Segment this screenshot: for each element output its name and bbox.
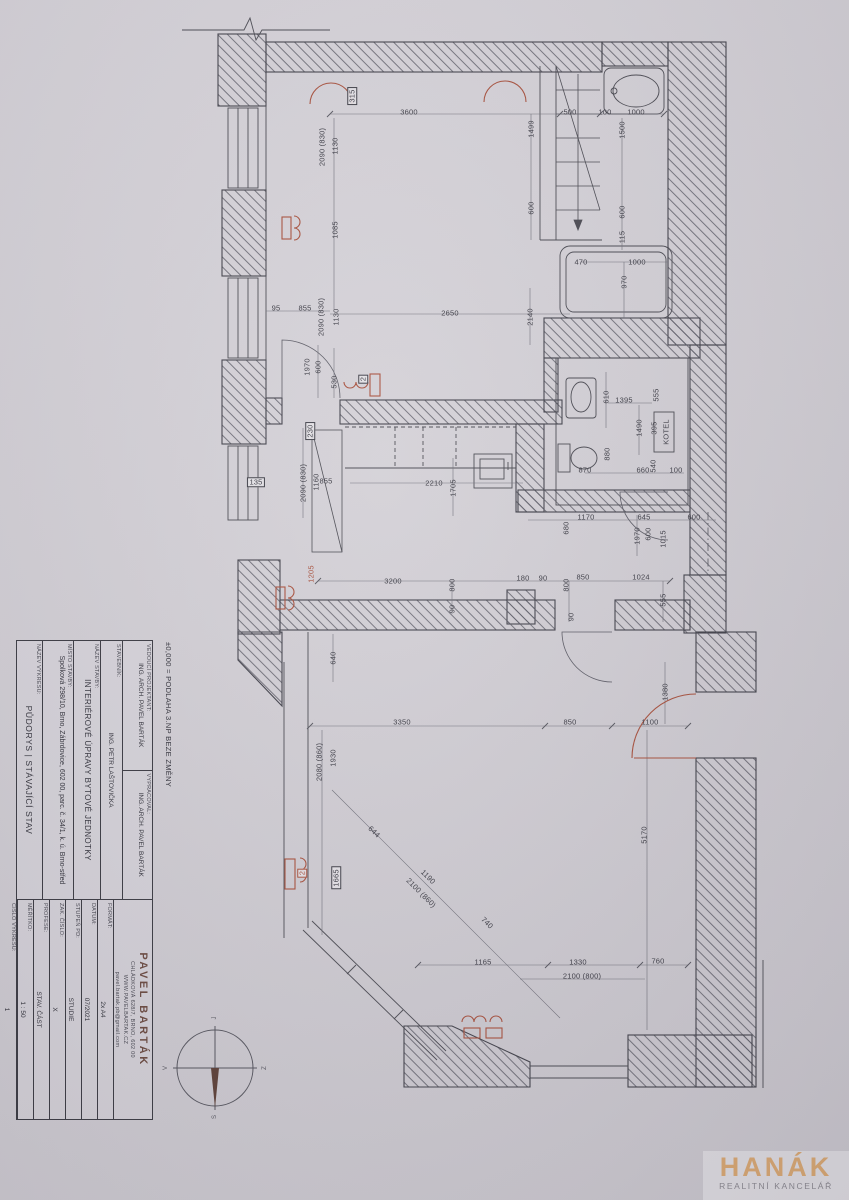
dimension-label: 1015 bbox=[659, 530, 667, 548]
dimension-label: 800 bbox=[448, 578, 456, 591]
meta-value: 07/2021 bbox=[84, 903, 91, 1116]
title-block-main-column: VEDOUCÍ PROJEKTANT: ING. ARCH. PAVEL BAR… bbox=[17, 641, 152, 900]
field-label: NÁZEV VÝKRESU: bbox=[35, 644, 41, 896]
meta-zakazka: ZAK. ČÍSLO: X bbox=[50, 900, 66, 1119]
field-label: VEDOUCÍ PROJEKTANT: bbox=[145, 644, 151, 767]
architect-name: PAVEL BARTÁK bbox=[137, 900, 149, 1119]
dimension-label: 855 bbox=[319, 477, 332, 485]
meta-value: 1 bbox=[4, 903, 11, 1116]
dimension-label: 555 bbox=[652, 388, 660, 401]
dimension-label: 645 bbox=[637, 513, 650, 521]
dimension-label: 90 bbox=[567, 613, 575, 622]
dimension-label: 2650 bbox=[441, 309, 459, 317]
field-misto-stavby: MÍSTO STAVBY: Spolková 298/10, Brno, Záb… bbox=[42, 641, 73, 899]
dimension-label: 1190 bbox=[419, 868, 436, 885]
dimension-label: 115 bbox=[618, 231, 626, 244]
dimension-label: 1930 bbox=[329, 749, 337, 767]
meta-value: 2x A4 bbox=[100, 903, 107, 1116]
reference-label: 2 bbox=[297, 868, 307, 877]
meta-value: STAV. ČÁST bbox=[36, 903, 43, 1116]
dimension-label: 555 bbox=[659, 593, 667, 606]
watermark-tagline: REALITNÍ KANCELÁŘ bbox=[703, 1181, 849, 1191]
dimension-label: 1705 bbox=[449, 479, 457, 497]
dimension-label: 1170 bbox=[578, 513, 595, 521]
field-label: NÁZEV STAVBY: bbox=[93, 644, 99, 896]
dimension-label: 3600 bbox=[400, 108, 418, 116]
dimension-label: 2100 (800) bbox=[563, 972, 601, 980]
dimension-label: 880 bbox=[603, 447, 611, 460]
field-value: ING. PETR LAŠTOVIČKA bbox=[107, 644, 114, 896]
meta-label: PROFESE: bbox=[43, 903, 49, 1116]
dimension-label: 500 bbox=[563, 108, 576, 116]
dimension-label: 180 bbox=[516, 574, 529, 582]
dimension-label: 970 bbox=[620, 275, 628, 288]
dimension-label: 855 bbox=[298, 304, 311, 312]
dimension-label: 1205 bbox=[307, 565, 315, 583]
field-stavebnik: STAVEBNÍK: ING. PETR LAŠTOVIČKA bbox=[100, 641, 122, 899]
scanned-floor-plan-photo: 315360011302090 (830)1499500100100015006… bbox=[0, 0, 849, 1200]
meta-cislo-vykresu: ČÍSLO VÝKRESU: 1 bbox=[3, 900, 18, 1119]
dimension-label: 2090 (830) bbox=[317, 298, 325, 336]
dimension-label: 1130 bbox=[332, 309, 340, 326]
dimension-label: 1130 bbox=[331, 138, 339, 155]
dimension-label: 644 bbox=[367, 825, 382, 840]
dimension-label: 600 bbox=[644, 527, 652, 540]
dimension-label: KOTEL bbox=[662, 419, 670, 445]
dimension-label: 2080 (860) bbox=[315, 743, 323, 781]
watermark-brand: HANÁK bbox=[703, 1153, 849, 1181]
dimension-label: 95 bbox=[272, 304, 281, 312]
meta-label: ZAK. ČÍSLO: bbox=[59, 903, 65, 1116]
dimension-label: 850 bbox=[563, 718, 576, 726]
title-block-meta-column: PAVEL BARTÁK CHLÁDKOVÁ 628/7, BRNO, 602 … bbox=[17, 900, 152, 1119]
dimension-label: 1330 bbox=[569, 958, 587, 966]
architect-contact: PAVEL BARTÁK CHLÁDKOVÁ 628/7, BRNO, 602 … bbox=[114, 900, 153, 1119]
meta-label: ČÍSLO VÝKRESU: bbox=[11, 903, 17, 1116]
dimension-label: 1085 bbox=[331, 221, 339, 239]
realty-watermark: HANÁK REALITNÍ KANCELÁŘ bbox=[703, 1151, 849, 1200]
architect-website: WWW.PAVELBARTAK.CZ bbox=[122, 900, 128, 1119]
field-label: MÍSTO STAVBY: bbox=[66, 644, 72, 896]
meta-label: MĚŘÍTKO: bbox=[27, 903, 33, 1116]
dimension-label: 640 bbox=[329, 651, 337, 664]
dimension-label: 600 bbox=[618, 205, 626, 218]
dimension-label: 870 bbox=[578, 466, 591, 474]
dimension-label: 90 bbox=[539, 574, 548, 582]
dimension-label: 90 bbox=[448, 605, 456, 614]
elevation-note: ±0,000 = PODLAHA 3.NP BEZE ZMĚNY bbox=[164, 642, 173, 787]
dimension-label: 600 bbox=[527, 201, 535, 214]
dimension-label: 100 bbox=[669, 466, 682, 474]
meta-label: DATUM: bbox=[91, 903, 97, 1116]
field-value: PŮDORYS | STÁVAJÍCÍ STAV bbox=[24, 644, 34, 896]
meta-meritko: MĚŘÍTKO: 1 : 50 bbox=[18, 900, 34, 1119]
dimension-label: 5170 bbox=[640, 826, 648, 844]
reference-label: 2 bbox=[358, 374, 368, 383]
dimension-label: 1100 bbox=[642, 718, 659, 726]
reference-label: 135 bbox=[247, 477, 265, 487]
dimension-label: 2210 bbox=[425, 479, 443, 487]
field-nazev-stavby: NÁZEV STAVBY: INTERIÉROVÉ ÚPRAVY BYTOVÉ … bbox=[73, 641, 100, 899]
dimension-label: 100 bbox=[598, 108, 611, 116]
title-block-table: VEDOUCÍ PROJEKTANT: ING. ARCH. PAVEL BAR… bbox=[16, 640, 153, 1120]
reference-label: 230 bbox=[305, 422, 315, 440]
dimension-label: 1380 bbox=[661, 683, 669, 701]
dimension-label: 600 bbox=[314, 360, 322, 373]
reference-label: 315 bbox=[347, 87, 357, 105]
dimension-label: 1500 bbox=[618, 121, 626, 139]
field-nazev-vykresu: NÁZEV VÝKRESU: PŮDORYS | STÁVAJÍCÍ STAV bbox=[17, 641, 42, 899]
field-vedouci-projektant: VEDOUCÍ PROJEKTANT: ING. ARCH. PAVEL BAR… bbox=[123, 641, 152, 771]
meta-stupen: STUPEŇ PD: STUDIE bbox=[66, 900, 82, 1119]
dimension-label: 1165 bbox=[475, 958, 492, 966]
architect-email: pavel.bartak.pb@gmail.com bbox=[115, 900, 121, 1119]
meta-profese: PROFESE: STAV. ČÁST bbox=[34, 900, 50, 1119]
field-value: ING. ARCH. PAVEL BARTÁK bbox=[137, 774, 144, 897]
dimension-label: 2090 (830) bbox=[299, 464, 307, 502]
meta-datum: DATUM: 07/2021 bbox=[82, 900, 98, 1119]
dimension-label: 1490 bbox=[635, 419, 643, 437]
dimension-label: 530 bbox=[330, 375, 338, 388]
field-value: INTERIÉROVÉ ÚPRAVY BYTOVÉ JEDNOTKY bbox=[83, 644, 92, 896]
dimension-label: 3200 bbox=[384, 577, 402, 585]
compass-letter-right: Z bbox=[262, 1066, 268, 1070]
field-label: VYPRACOVAL: bbox=[145, 774, 151, 897]
dimension-label: 1499 bbox=[527, 120, 535, 138]
dimension-label: 1970 bbox=[633, 527, 641, 545]
dimension-label: 1000 bbox=[627, 108, 645, 116]
dimension-label: 395 bbox=[650, 421, 658, 434]
meta-value: 1 : 50 bbox=[20, 903, 27, 1116]
meta-format: FORMÁT: 2x A4 bbox=[98, 900, 114, 1119]
dimension-label: 2090 (830) bbox=[318, 128, 326, 166]
architect-address: CHLÁDKOVÁ 628/7, BRNO, 602 00 bbox=[130, 900, 136, 1119]
field-value: ING. ARCH. PAVEL BARTÁK bbox=[137, 644, 144, 767]
dimension-label: 740 bbox=[480, 916, 495, 931]
meta-label: FORMÁT: bbox=[107, 903, 113, 1116]
field-label: STAVEBNÍK: bbox=[115, 644, 121, 896]
field-value: Spolková 298/10, Brno, Zábrdovice, 602 0… bbox=[58, 644, 65, 896]
title-block: ±0,000 = PODLAHA 3.NP BEZE ZMĚNY VEDOUCÍ… bbox=[18, 130, 233, 1120]
meta-label: STUPEŇ PD: bbox=[75, 903, 81, 1116]
meta-value: STUDIE bbox=[68, 903, 75, 1116]
dimension-label: 3350 bbox=[393, 718, 411, 726]
dimension-label: 680 bbox=[562, 521, 570, 534]
dimension-label: 470 bbox=[574, 258, 587, 266]
dimension-label: 1395 bbox=[615, 396, 633, 404]
dimension-label: 600 bbox=[687, 513, 700, 521]
dimension-label: 1000 bbox=[628, 258, 646, 266]
meta-value: X bbox=[52, 903, 59, 1116]
dimension-label: 1024 bbox=[632, 573, 650, 581]
reference-label: 1665 bbox=[331, 867, 341, 890]
dimension-label: 610 bbox=[602, 390, 610, 403]
dimension-label: 2140 bbox=[526, 308, 534, 326]
field-vypracoval: VYPRACOVAL: ING. ARCH. PAVEL BARTÁK bbox=[123, 771, 152, 900]
dimension-label: 540 bbox=[649, 459, 657, 472]
dimension-label: 800 bbox=[562, 578, 570, 591]
dimension-label: 760 bbox=[651, 957, 664, 965]
dimension-label: 1970 bbox=[303, 358, 311, 376]
dimension-label: 850 bbox=[576, 573, 589, 581]
